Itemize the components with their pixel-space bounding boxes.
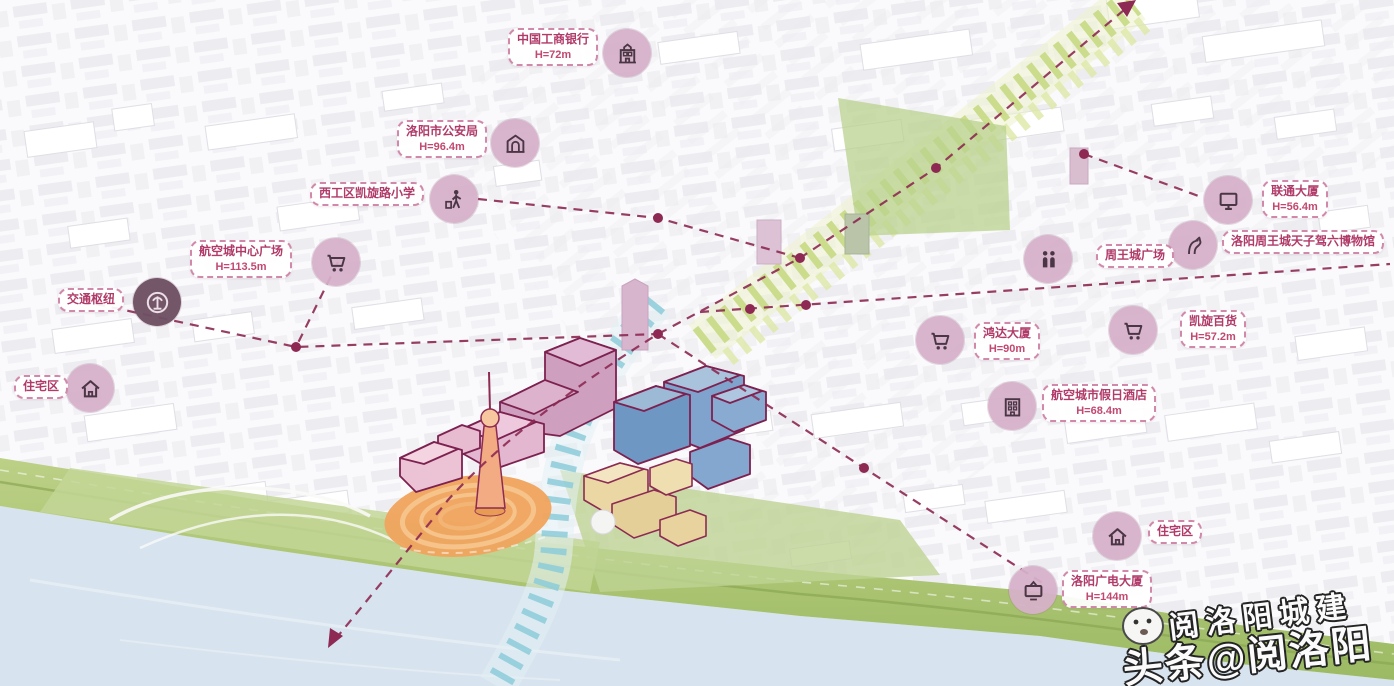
hongda-tower-icon-badge: [916, 316, 964, 364]
label-aerocity-plaza: 航空城中心广场 H=113.5m: [190, 240, 292, 278]
aerocity-plaza-icon-badge: [312, 238, 360, 286]
holiday-hotel-icon-badge: [988, 382, 1036, 430]
residential-east-icon-badge: [1093, 512, 1141, 560]
label-transport-hub: 交通枢纽: [58, 288, 124, 312]
shopping-cart-icon: [323, 249, 350, 276]
arch-gate-icon: [502, 130, 529, 157]
house-icon: [77, 375, 104, 402]
label-hongda-tower: 鸿达大厦 H=90m: [974, 322, 1040, 360]
public-security-icon-badge: [491, 119, 539, 167]
unicom-tower-icon-badge: [1204, 176, 1252, 224]
label-icbc-bank: 中国工商银行 H=72m: [508, 28, 598, 66]
label-zhouwangcheng-square: 周王城广场: [1096, 244, 1174, 268]
label-residential-east: 住宅区: [1148, 520, 1202, 544]
zhouwangcheng-square-icon-badge: [1024, 235, 1072, 283]
label-unicom-tower: 联通大厦 H=56.4m: [1262, 180, 1328, 218]
residential-west-icon-badge: [66, 364, 114, 412]
department-store-icon-badge: [1109, 306, 1157, 354]
icbc-icon-badge: [603, 29, 651, 77]
horse-icon: [1180, 232, 1207, 259]
monitor-icon: [1215, 187, 1242, 214]
label-public-security: 洛阳市公安局 H=96.4m: [397, 120, 487, 158]
museum-icon-badge: [1169, 221, 1217, 269]
transport-hub-icon-badge: [133, 278, 181, 326]
label-holiday-hotel: 航空城市假日酒店 H=68.4m: [1042, 384, 1156, 422]
broadcast-tower-icon-badge: [1009, 566, 1057, 614]
shopping-cart-icon: [927, 327, 954, 354]
statues-icon: [1035, 246, 1062, 273]
person-walking-icon: [441, 186, 468, 213]
school-icon-badge: [430, 175, 478, 223]
label-primary-school: 西工区凯旋路小学: [310, 182, 424, 206]
house-icon: [1104, 523, 1131, 550]
shopping-cart-icon: [1120, 317, 1147, 344]
label-tianzijialiu-museum: 洛阳周王城天子驾六博物馆: [1222, 230, 1384, 254]
tv-broadcast-icon: [1020, 577, 1047, 604]
hotel-building-icon: [999, 393, 1026, 420]
bank-building-icon: [614, 40, 641, 67]
label-residential-west: 住宅区: [14, 375, 68, 399]
dome-building: [591, 510, 615, 534]
label-kaixuan-department-store: 凯旋百货 H=57.2m: [1180, 310, 1246, 348]
railway-icon: [144, 289, 171, 316]
urban-plan-canvas: 中国工商银行 H=72m 洛阳市公安局 H=96.4m 西工区凯旋路小学 航空城…: [0, 0, 1394, 686]
label-broadcast-tower: 洛阳广电大厦 H=144m: [1062, 570, 1152, 608]
